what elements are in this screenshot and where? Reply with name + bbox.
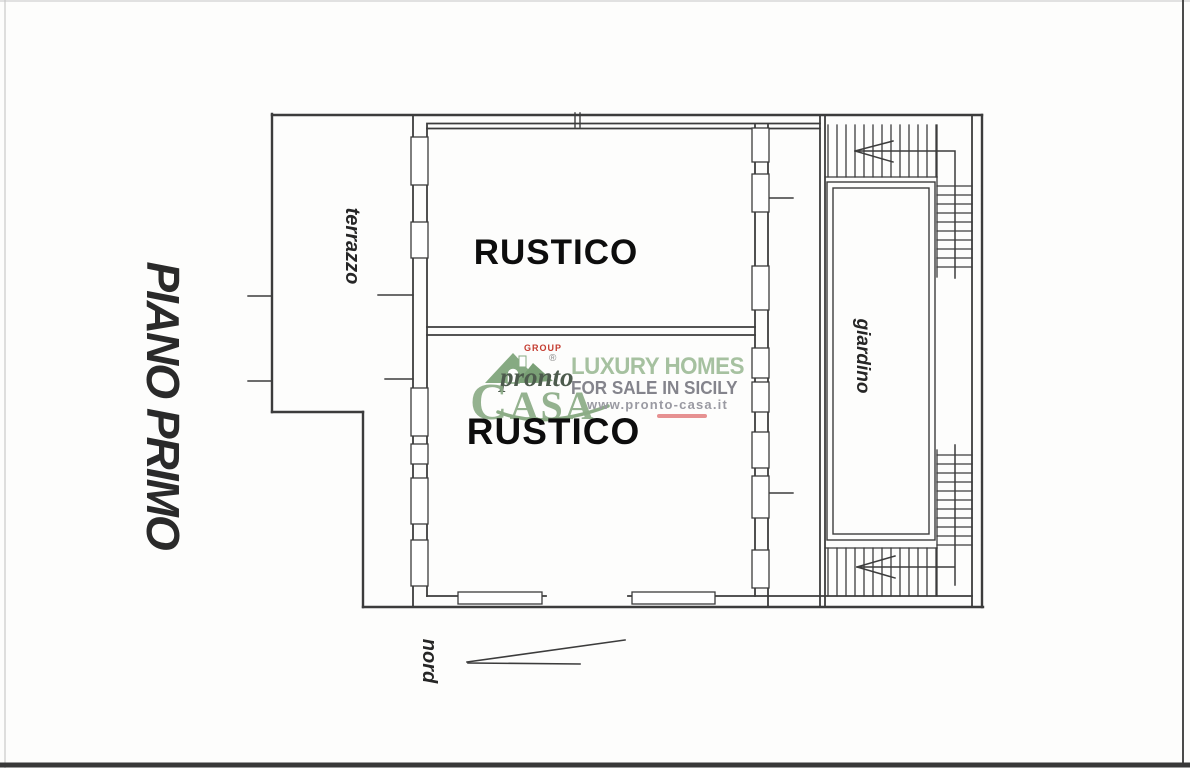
floor-title: PIANO PRIMO <box>137 235 189 575</box>
scanned-floor-plan-page: GROUP ® pronto CASA LUXURY HOMES FOR SAL… <box>0 0 1190 768</box>
watermark-underline-bar <box>657 414 707 418</box>
staircase-bottom <box>825 548 937 596</box>
watermark-tagline-2: FOR SALE IN SICILY <box>571 379 738 397</box>
room-label-giardino: giardino <box>850 291 874 421</box>
room-label-terrazzo: terrazzo <box>340 196 364 296</box>
north-arrow-icon <box>467 640 625 664</box>
north-label: nord <box>417 629 441 693</box>
room-label-rustico-lower: RUSTICO <box>456 409 651 455</box>
watermark-group-label: GROUP <box>524 344 562 353</box>
garden-border <box>827 182 935 540</box>
watermark-tagline-1: LUXURY HOMES <box>571 355 744 379</box>
room-label-rustico-upper: RUSTICO <box>461 230 651 276</box>
